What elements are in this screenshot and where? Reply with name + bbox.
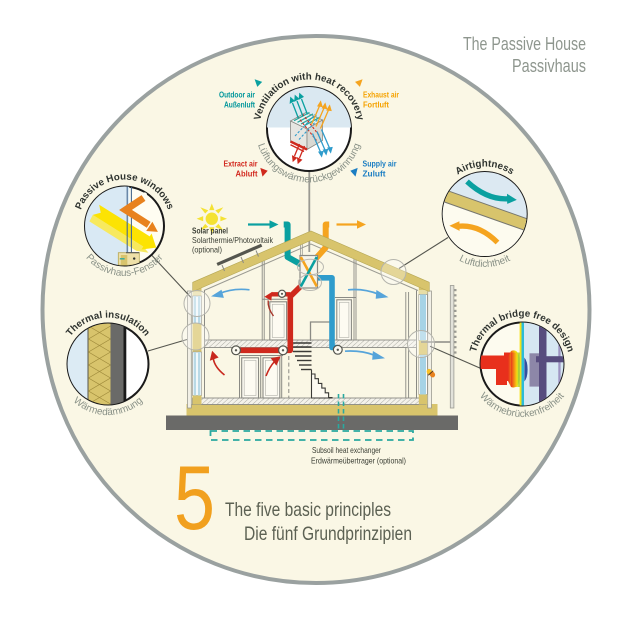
svg-text:Outdoor air: Outdoor air — [219, 90, 256, 100]
svg-text:Passivhaus: Passivhaus — [512, 56, 586, 76]
svg-text:The five basic principles: The five basic principles — [225, 499, 391, 521]
svg-text:Solarthermie/Photovoltaik: Solarthermie/Photovoltaik — [192, 235, 274, 245]
svg-text:Fortluft: Fortluft — [363, 100, 389, 110]
svg-text:The Passive House: The Passive House — [463, 34, 586, 54]
svg-text:Extract air: Extract air — [224, 159, 259, 169]
svg-text:Supply air: Supply air — [363, 159, 398, 169]
svg-text:Exhaust air: Exhaust air — [363, 90, 400, 100]
svg-text:Die fünf Grundprinzipien: Die fünf Grundprinzipien — [244, 523, 412, 545]
svg-text:Abluft: Abluft — [236, 169, 258, 179]
svg-text:Zuluft: Zuluft — [363, 169, 386, 179]
svg-text:Außenluft: Außenluft — [224, 100, 255, 110]
svg-text:(optional): (optional) — [192, 245, 222, 255]
svg-text:Erdwärmeübertrager (optional): Erdwärmeübertrager (optional) — [311, 456, 406, 466]
svg-text:Subsoil heat exchanger: Subsoil heat exchanger — [312, 445, 381, 455]
svg-text:Solar panel: Solar panel — [192, 226, 228, 236]
svg-text:5: 5 — [174, 448, 215, 549]
